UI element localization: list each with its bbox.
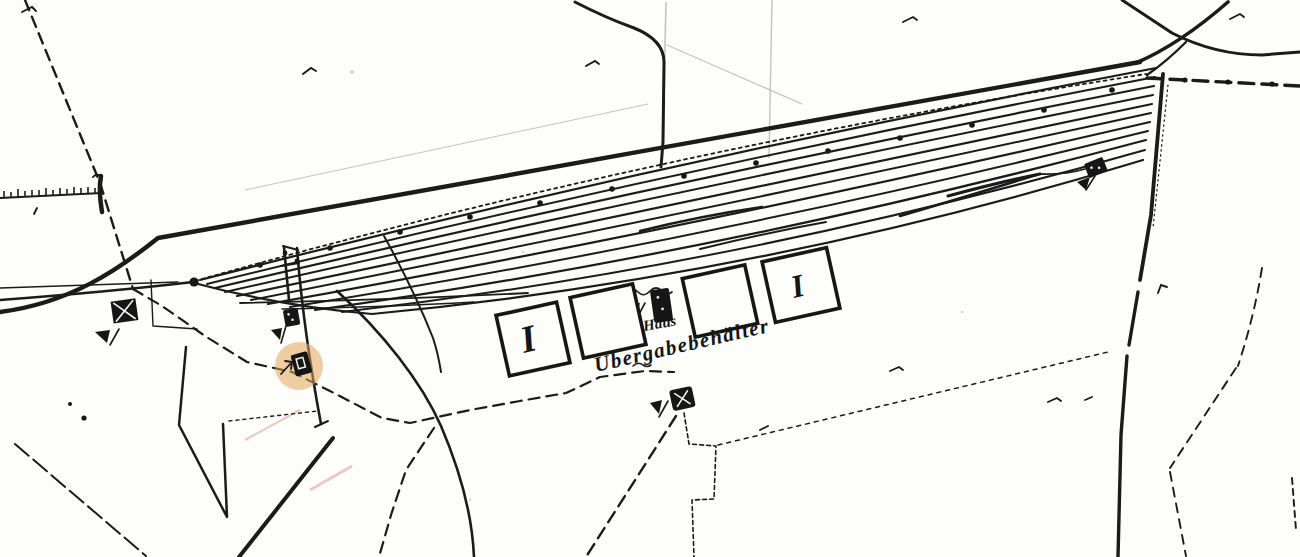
road-from-north	[575, 2, 664, 167]
signal-box-west	[111, 298, 139, 323]
crossing-line	[1122, 0, 1300, 55]
dotted-diagonal-east	[718, 352, 1108, 445]
fence-end-signal	[100, 176, 102, 212]
yard-track-bundle	[194, 68, 1156, 314]
railway-map-svg: Haus I I Übergabebehälter	[0, 0, 1300, 557]
flag-south	[650, 400, 668, 417]
yard-end-box	[1084, 157, 1108, 178]
haus-label: Haus	[641, 312, 678, 334]
highlight-marker[interactable]	[275, 342, 323, 390]
thick-diagonal-south	[239, 438, 333, 557]
post-dotted-line	[189, 74, 1146, 287]
thin-diagonal-corner	[15, 444, 146, 556]
hook-to-box	[1038, 169, 1085, 174]
map-canvas: Haus I I Übergabebehälter	[0, 0, 1300, 557]
boundary-box-south	[669, 386, 696, 411]
dashed-boundaries-southeast	[1170, 268, 1296, 556]
junction-branch-up	[1136, 2, 1228, 63]
stub-box	[283, 308, 301, 327]
fence-row	[0, 175, 102, 212]
line-east-dashed	[1147, 78, 1300, 86]
approach-lines-west	[0, 282, 193, 300]
boundary-branch-southwest	[586, 416, 676, 557]
pink-pencil-strokes	[245, 410, 352, 490]
boundary-branch-south	[379, 428, 434, 557]
stepped-parcel-line	[684, 352, 1108, 557]
merge-curve-1	[640, 207, 762, 231]
dashed-path-topleft	[25, 0, 133, 289]
arc-road-south	[337, 236, 474, 557]
flag-west	[95, 329, 119, 345]
flag-stub	[271, 326, 286, 343]
